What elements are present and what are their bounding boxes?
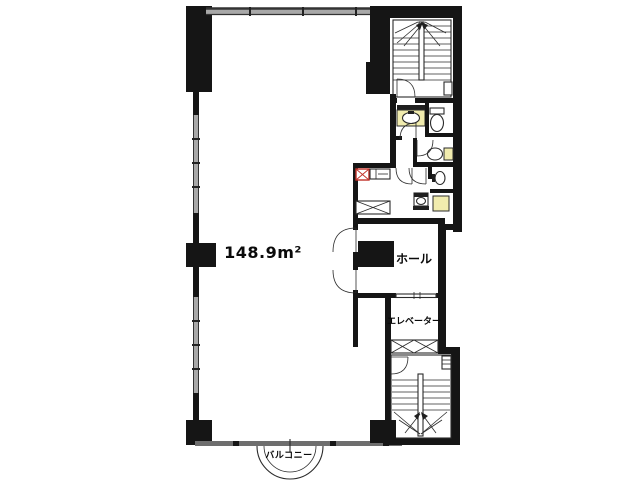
door-arc <box>333 270 356 293</box>
wall-fixture-mid <box>430 189 461 193</box>
corridor-door <box>396 168 412 184</box>
wall-column-left-middle <box>186 243 216 267</box>
door-arc <box>391 357 408 374</box>
wall-stair-divider-widen <box>366 62 372 94</box>
wall-hall-right <box>438 224 445 298</box>
door-stop <box>444 82 452 95</box>
stairs-bottom <box>370 354 451 443</box>
wall-service-top <box>353 163 396 168</box>
wall-right-lower <box>451 347 460 445</box>
wall-hall-bottom-right <box>436 293 445 298</box>
door-arc <box>409 168 426 184</box>
counter-icon <box>433 196 449 211</box>
door-stop <box>442 356 451 369</box>
elevator-door <box>396 292 436 299</box>
wall-below-landing <box>415 98 453 103</box>
door-arc <box>333 228 356 252</box>
wall-toilet1-bottom <box>425 133 461 137</box>
wall-right-upper <box>453 6 462 232</box>
hall-label: ホール <box>396 252 432 266</box>
wall-block-stair-left <box>370 420 396 443</box>
hall-door-lower <box>333 270 356 293</box>
wall-fixture-left <box>428 167 432 179</box>
wall-vanity-divider <box>425 102 429 136</box>
wall-wing-left <box>390 94 396 168</box>
hand-sink-icon <box>413 193 429 210</box>
hall: ホール <box>333 218 445 298</box>
floor-plan: バルコニー 148.9m² <box>0 0 640 480</box>
wall-alcove-left <box>353 293 358 347</box>
washroom-wing <box>353 94 461 225</box>
toilet-icon-2 <box>428 148 454 160</box>
toilet-icon-1 <box>430 108 444 132</box>
shaft-x-icon <box>356 201 390 214</box>
stair-treads <box>392 374 450 436</box>
stairwell-door <box>391 356 451 374</box>
main-room: 148.9m² <box>224 243 302 262</box>
door-arc <box>397 79 415 97</box>
stair-landing-door <box>397 79 452 97</box>
vanity-sink-icon <box>397 105 425 126</box>
pipe-space-icon <box>356 169 369 180</box>
hall-door-upper <box>333 228 356 252</box>
window-top <box>206 7 374 16</box>
wall-bottom-stair <box>388 438 460 445</box>
floor-plan-canvas: バルコニー 148.9m² <box>0 0 640 480</box>
door-arc <box>396 168 412 184</box>
elevator-label: エレベーター <box>387 315 441 327</box>
wall-hall-block <box>358 241 394 267</box>
wall-hall-bottom-left <box>353 293 396 298</box>
balcony-label: バルコニー <box>265 450 312 461</box>
wall-stair-divider <box>370 6 390 94</box>
duct-icon <box>370 169 390 179</box>
wall-toilet2-bottom <box>413 162 461 167</box>
elevator-shaft-icon <box>391 340 438 353</box>
wall-column-top-left <box>186 6 212 92</box>
stair-treads <box>393 22 451 80</box>
bidet-icon <box>432 172 445 185</box>
stairs-top <box>366 6 452 97</box>
wall-hall-top <box>353 218 445 224</box>
fixture-room-door <box>409 168 426 184</box>
elevator: エレベーター <box>353 292 445 354</box>
area-label: 148.9m² <box>224 243 302 262</box>
